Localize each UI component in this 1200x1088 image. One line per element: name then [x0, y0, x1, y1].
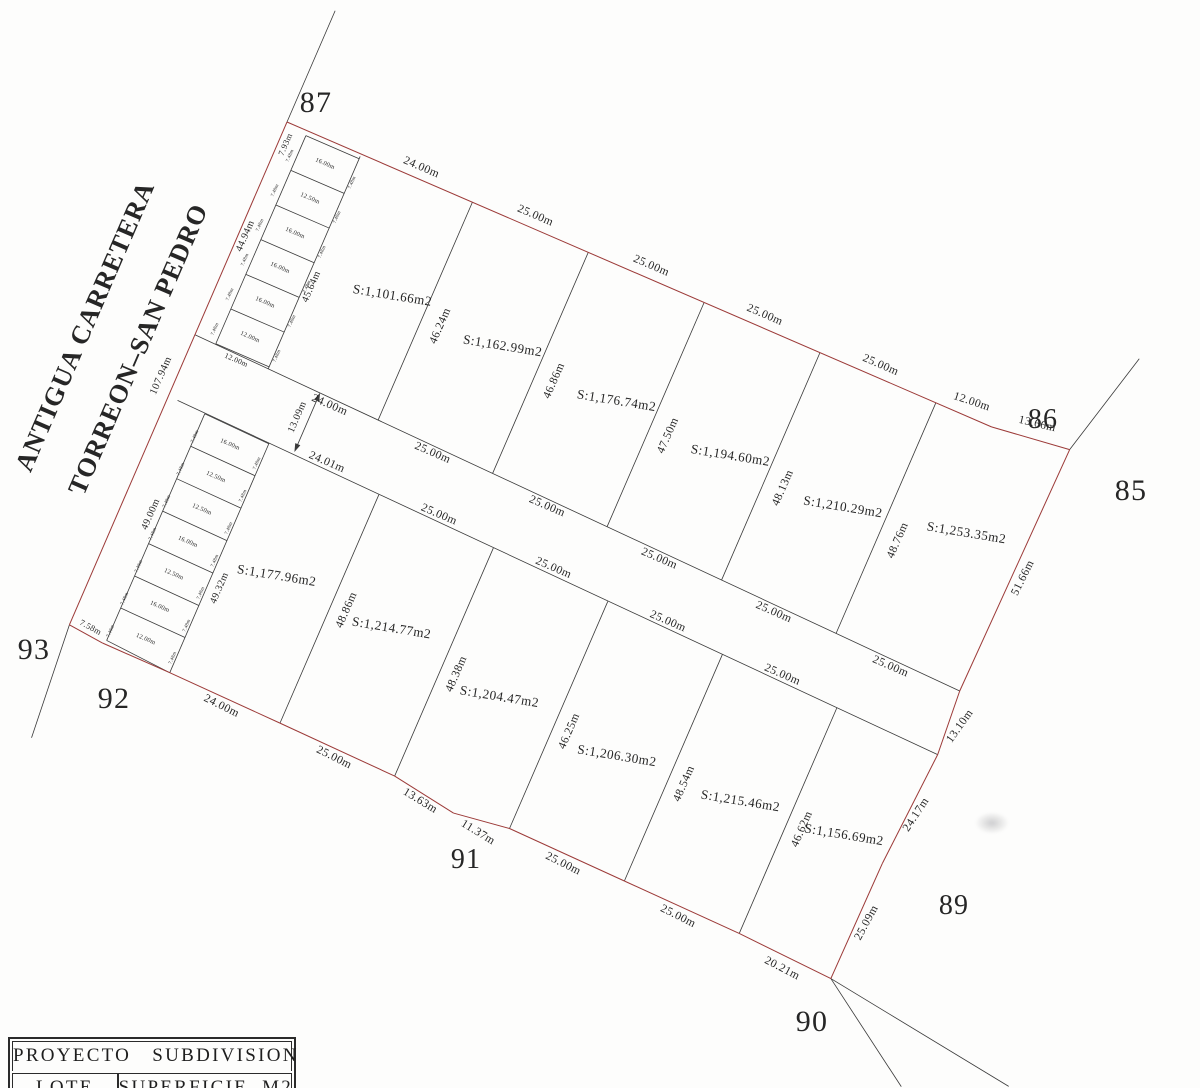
- title-block-table: PROYECTO SUBDIVISION LOTE SUPERFICIE M2: [8, 1037, 296, 1088]
- small-lot-side-label: 7.48m: [210, 554, 220, 568]
- dimension-label: 25.00m: [754, 598, 794, 625]
- parcel-line: [246, 274, 299, 297]
- small-lot-width-label: 16.00m: [219, 437, 241, 452]
- dimension-arrowhead: [292, 443, 301, 453]
- subdivision-plan-page: 24.00m25.00m25.00m25.00m25.00m12.00m13.6…: [0, 0, 1200, 1088]
- parcel-line: [204, 414, 270, 444]
- lot-area-label: S:1,214.77m2: [351, 614, 432, 642]
- small-lot-width-label: 12.50m: [205, 470, 227, 485]
- parcel-line: [120, 608, 185, 637]
- plan-canvas: 24.00m25.00m25.00m25.00m25.00m12.00m13.6…: [0, 0, 1200, 1088]
- lot-area-label: S:1,176.74m2: [576, 386, 657, 414]
- dimension-label: 25.00m: [413, 439, 453, 466]
- dimension-label: 12.00m: [223, 351, 249, 369]
- dimension-label: 24.00m: [402, 154, 442, 181]
- parcel-line: [395, 548, 494, 776]
- small-lot-side-label: 7.48m: [253, 457, 263, 471]
- small-lot-width-label: 16.00m: [269, 260, 291, 275]
- parcel-line: [722, 353, 820, 581]
- dimension-label: 46.24m: [426, 306, 453, 346]
- small-lot-side-label: 7.48m: [190, 430, 200, 444]
- dimension-label: 48.76m: [884, 520, 911, 560]
- lot-area-label: S:1,210.29m2: [802, 493, 883, 521]
- boundary-line: [960, 448, 1070, 693]
- lot-area-label: S:1,215.46m2: [700, 787, 781, 815]
- parcel-line: [607, 303, 704, 527]
- small-lot-side-label: 7.48m: [239, 489, 249, 503]
- small-lot-side-label: 7.48m: [162, 495, 172, 509]
- small-lot-side-label: 7.48m: [168, 651, 178, 665]
- dimension-label: 48.54m: [670, 763, 697, 803]
- parcel-line: [276, 205, 329, 228]
- parcel-line: [624, 655, 722, 881]
- lot-area-label: S:1,162.99m2: [462, 331, 543, 359]
- vertex-number-90: 90: [796, 1005, 828, 1038]
- vertex-number-89: 89: [939, 890, 969, 921]
- small-lot-side-label: 7.48m: [225, 521, 235, 535]
- dimension-label: 20.21m: [762, 954, 802, 983]
- lot-area-label: S:1,156.69m2: [804, 820, 885, 848]
- dimension-label: 51.66m: [1008, 558, 1037, 598]
- vertex-number-92: 92: [98, 682, 130, 715]
- dimension-label: 13.10m: [943, 707, 976, 745]
- parcel-line: [176, 479, 241, 508]
- small-lot-side-label: 7.48m: [134, 559, 144, 573]
- dimension-label: 24.01m: [307, 448, 347, 475]
- small-lot-side-label: 7.48m: [211, 322, 221, 336]
- parcel-line: [231, 309, 284, 332]
- small-lot-side-label: 7.48m: [182, 619, 192, 633]
- parcel-line: [148, 544, 213, 573]
- lot-area-label: S:1,206.30m2: [576, 741, 657, 769]
- dimension-label: 24.17m: [900, 795, 932, 834]
- parcel-line: [291, 170, 344, 193]
- parcel-line: [162, 511, 227, 540]
- dimension-label: 46.86m: [540, 361, 567, 401]
- dimension-label: 25.00m: [763, 661, 803, 688]
- title-block-row-project: PROYECTO SUBDIVISION: [12, 1041, 292, 1071]
- parcel-line: [261, 240, 314, 263]
- small-lot-side-label: 7.48m: [288, 314, 298, 328]
- dimension-label: 7.58m: [78, 617, 103, 637]
- small-lot-side-label: 7.48m: [348, 176, 358, 190]
- dimension-label: 25.00m: [516, 202, 556, 229]
- vertex-number-86: 86: [1028, 404, 1058, 435]
- title-block-row-headers: LOTE SUPERFICIE M2: [12, 1073, 292, 1088]
- project-title: PROYECTO SUBDIVISION: [13, 1042, 291, 1071]
- dimension-label: 47.50m: [654, 415, 681, 455]
- boundary-line: [169, 673, 281, 723]
- column-header-superficie: SUPERFICIE M2: [119, 1074, 291, 1088]
- small-lot-side-label: 7.48m: [271, 184, 281, 198]
- small-lot-side-label: 7.48m: [333, 210, 343, 224]
- dimension-label: 48.13m: [769, 468, 796, 508]
- lot-area-label: S:1,177.96m2: [236, 561, 317, 589]
- parcel-line: [190, 446, 255, 475]
- dimension-label: 13.09m: [286, 400, 309, 435]
- small-lot-width-label: 16.00m: [284, 226, 306, 241]
- parcel-line: [105, 640, 172, 672]
- small-lot-side-label: 7.48m: [106, 624, 116, 638]
- dimension-label: 25.00m: [871, 653, 911, 680]
- small-lot-width-label: 16.00m: [149, 599, 171, 614]
- boundary-line: [103, 643, 170, 673]
- vertex-number-91: 91: [451, 844, 481, 875]
- lot-area-label: S:1,101.66m2: [352, 281, 433, 309]
- small-lot-width-label: 12.00m: [135, 632, 157, 647]
- parcel-line: [280, 495, 379, 723]
- small-lot-side-label: 7.48m: [120, 592, 130, 606]
- vertex-number-93: 93: [18, 633, 50, 666]
- parcel-line: [493, 252, 589, 473]
- small-lot-side-label: 7.48m: [196, 586, 206, 600]
- small-lot-width-label: 16.00m: [254, 295, 276, 310]
- boundary-line: [279, 723, 396, 776]
- small-lot-side-label: 7.48m: [273, 349, 283, 363]
- small-lot-side-label: 7.48m: [176, 462, 186, 476]
- parcel-line: [1070, 348, 1140, 461]
- boundary-line: [831, 863, 882, 979]
- small-lot-width-label: 12.00m: [239, 330, 261, 345]
- parcel-line: [836, 403, 936, 634]
- small-lot-width-label: 16.00m: [314, 156, 336, 171]
- column-header-lote: LOTE: [13, 1074, 119, 1088]
- parcel-line: [739, 708, 837, 934]
- dimension-label: 11.37m: [459, 817, 498, 848]
- small-lot-width-label: 16.00m: [177, 535, 199, 550]
- small-lot-width-label: 12.50m: [299, 191, 321, 206]
- lot-area-label: S:1,253.35m2: [926, 518, 1007, 546]
- small-lot-side-label: 7.48m: [226, 288, 236, 302]
- dimension-label: 25.00m: [419, 501, 459, 528]
- small-lot-side-label: 7.48m: [318, 245, 328, 259]
- dimension-label: 13.63m: [401, 785, 440, 816]
- dimension-label: 25.00m: [314, 743, 354, 772]
- dimension-label: 49.00m: [139, 497, 162, 532]
- lot-area-label: S:1,204.47m2: [459, 682, 540, 710]
- boundary-line: [509, 829, 626, 881]
- parcel-line: [306, 136, 359, 159]
- parcel-line: [378, 202, 472, 420]
- dimension-label: 24.00m: [202, 691, 242, 720]
- dimension-label: 25.00m: [527, 492, 567, 519]
- small-lot-side-label: 7.48m: [256, 218, 266, 232]
- dimension-label: 25.00m: [745, 301, 785, 328]
- boundary-line: [623, 881, 740, 933]
- dimension-label: 25.00m: [631, 252, 671, 279]
- parcel-line: [510, 601, 608, 828]
- small-lot-width-label: 12.50m: [191, 502, 213, 517]
- lot-area-label: S:1,194.60m2: [690, 441, 771, 469]
- vertex-number-85: 85: [1115, 474, 1147, 507]
- scan-smudge: [975, 812, 1009, 834]
- dimension-label: 12.00m: [952, 389, 992, 413]
- small-lot-width-label: 12.50m: [163, 567, 185, 582]
- dimension-label: 25.00m: [534, 554, 574, 581]
- small-lot-side-label: 7.48m: [241, 253, 251, 267]
- parcel-line: [134, 576, 199, 605]
- vertex-number-87: 87: [300, 86, 332, 119]
- dimension-label: 25.00m: [639, 545, 679, 572]
- dimension-label: 25.00m: [861, 351, 901, 378]
- parcel-line: [820, 979, 1020, 1087]
- dimension-label: 24.00m: [310, 391, 350, 418]
- boundary-line: [69, 122, 287, 625]
- boundary-line: [287, 122, 991, 427]
- dimension-label: 25.00m: [648, 607, 688, 634]
